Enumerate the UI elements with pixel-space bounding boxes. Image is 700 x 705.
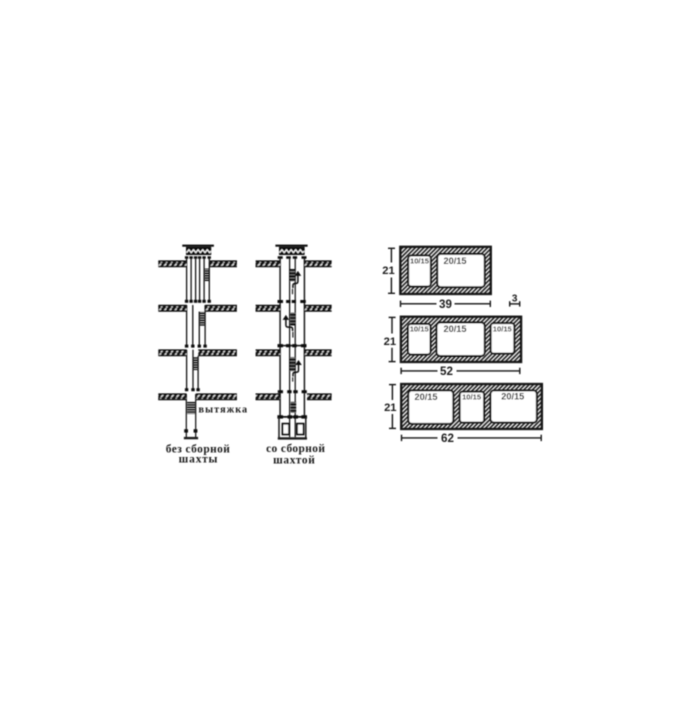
svg-text:39: 39 <box>439 298 452 311</box>
svg-text:52: 52 <box>440 365 453 378</box>
svg-text:3: 3 <box>512 294 518 305</box>
svg-text:62: 62 <box>441 432 454 445</box>
svg-text:шахтой: шахтой <box>273 454 315 466</box>
svg-text:10/15: 10/15 <box>462 392 482 401</box>
svg-text:шахты: шахты <box>179 454 219 466</box>
svg-text:вытяжка: вытяжка <box>199 404 249 415</box>
svg-text:21: 21 <box>384 402 396 414</box>
svg-text:10/15: 10/15 <box>410 256 430 265</box>
svg-text:10/15: 10/15 <box>410 325 430 334</box>
svg-text:20/15: 20/15 <box>501 392 524 402</box>
svg-text:10/15: 10/15 <box>493 324 513 333</box>
svg-text:20/15: 20/15 <box>444 256 467 266</box>
svg-text:20/15: 20/15 <box>444 324 467 334</box>
svg-text:со сборной: со сборной <box>266 443 325 455</box>
svg-text:20/15: 20/15 <box>415 392 438 402</box>
svg-text:21: 21 <box>384 336 396 348</box>
svg-text:21: 21 <box>382 265 394 277</box>
